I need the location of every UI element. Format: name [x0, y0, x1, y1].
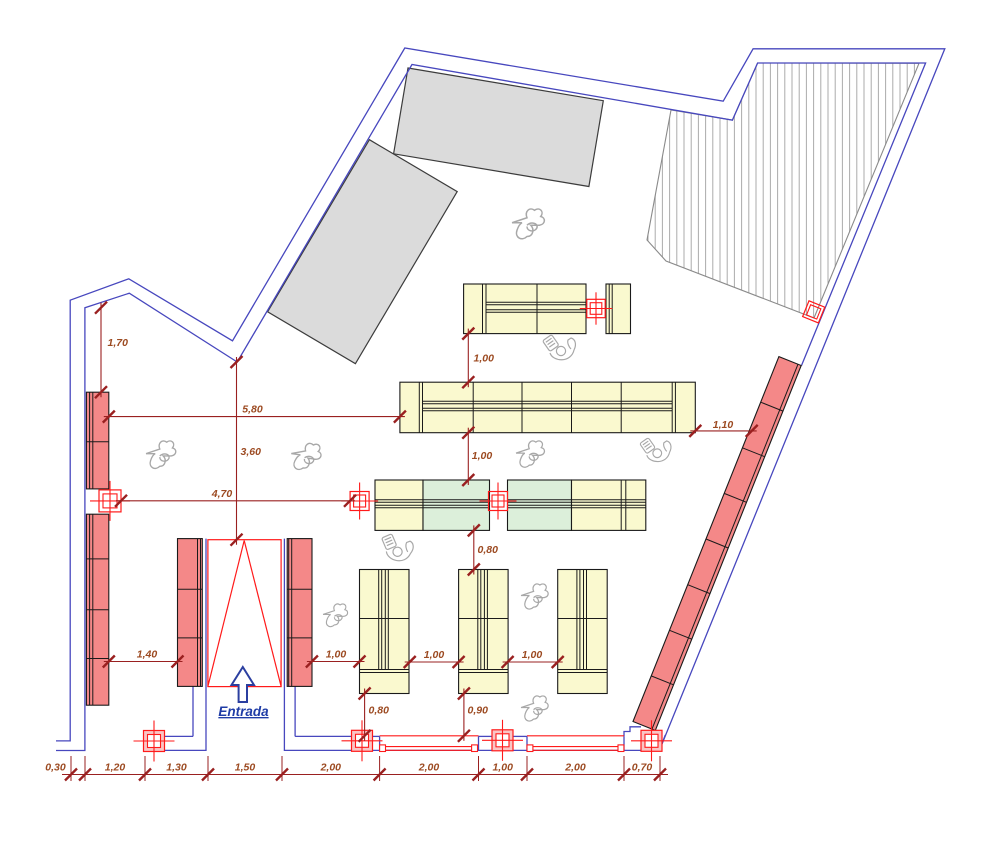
svg-text:5,80: 5,80 [242, 404, 263, 416]
svg-text:1,00: 1,00 [522, 649, 543, 661]
svg-text:0,80: 0,80 [369, 705, 390, 717]
svg-text:1,00: 1,00 [492, 762, 513, 774]
svg-text:1,20: 1,20 [105, 762, 126, 774]
svg-text:1,30: 1,30 [166, 762, 187, 774]
svg-text:1,70: 1,70 [108, 337, 129, 349]
svg-text:1,00: 1,00 [474, 353, 495, 365]
svg-text:3,60: 3,60 [241, 446, 262, 458]
svg-text:1,50: 1,50 [235, 762, 256, 774]
svg-text:1,10: 1,10 [713, 419, 734, 431]
svg-text:0,90: 0,90 [468, 705, 489, 717]
svg-text:2,00: 2,00 [564, 762, 586, 774]
svg-text:0,30: 0,30 [45, 762, 66, 774]
svg-text:1,00: 1,00 [424, 649, 445, 661]
svg-text:2,00: 2,00 [320, 762, 342, 774]
svg-text:1,00: 1,00 [472, 450, 493, 462]
svg-text:Entrada: Entrada [218, 704, 269, 719]
svg-text:1,00: 1,00 [326, 649, 347, 661]
svg-text:1,40: 1,40 [137, 649, 158, 661]
svg-text:0,80: 0,80 [478, 544, 499, 556]
svg-text:0,70: 0,70 [632, 762, 653, 774]
svg-text:4,70: 4,70 [211, 488, 233, 500]
svg-text:2,00: 2,00 [418, 762, 440, 774]
